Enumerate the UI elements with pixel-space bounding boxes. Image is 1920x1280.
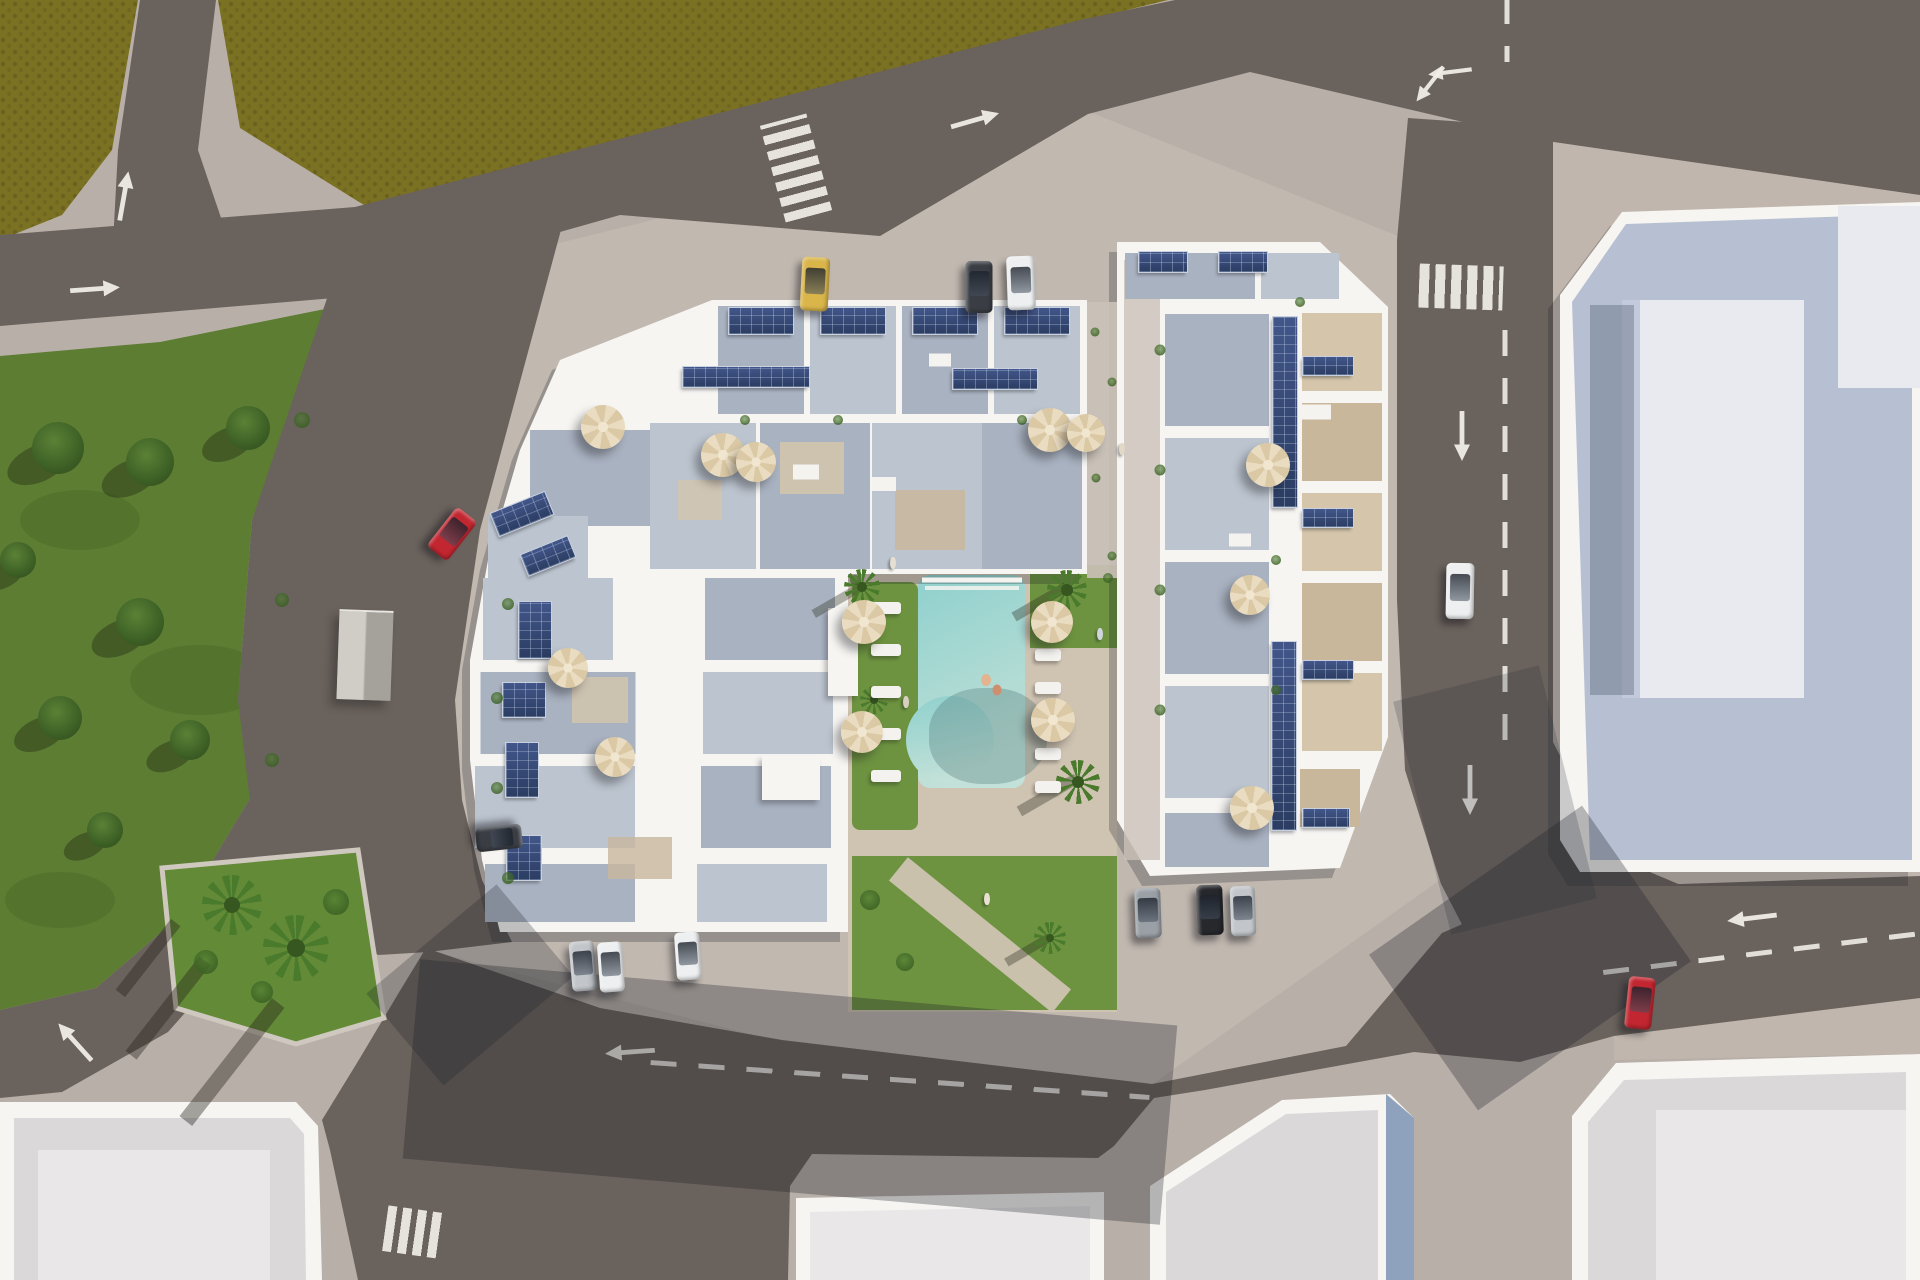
palm-shadow	[116, 919, 181, 997]
items-layer	[0, 0, 1920, 1280]
aerial-site-plan	[0, 0, 1920, 1280]
road-arrow	[70, 279, 121, 298]
terrace-gravel	[1302, 493, 1382, 571]
solar-panel	[1303, 357, 1353, 375]
pool-shade	[929, 688, 1047, 784]
parasol	[841, 711, 883, 753]
island-shrub	[323, 889, 349, 915]
shrub	[294, 412, 310, 428]
patio-table	[929, 354, 951, 367]
sun-lounger	[1035, 649, 1061, 661]
road-arrow	[112, 170, 136, 222]
parasol	[1246, 443, 1290, 487]
planter	[1155, 705, 1166, 716]
solar-panel	[1139, 252, 1187, 272]
terrace-gravel	[572, 677, 628, 723]
parasol	[736, 442, 776, 482]
terrace-gravel	[1302, 673, 1382, 751]
planter	[1092, 474, 1101, 483]
shrub	[265, 753, 279, 767]
planter	[1091, 328, 1100, 337]
parasol	[1067, 414, 1105, 452]
terrace-unit	[705, 578, 835, 660]
solar-panel	[503, 683, 545, 717]
silver-car	[1230, 886, 1257, 937]
patio-table	[1229, 534, 1251, 547]
terrace-unit	[1261, 253, 1339, 299]
island-palm	[202, 875, 262, 935]
road-arrow	[949, 105, 1001, 134]
island-shrub	[251, 981, 273, 1003]
pedestrian	[1119, 443, 1125, 455]
planter	[502, 872, 514, 884]
patio-table	[872, 477, 896, 491]
planter	[1017, 415, 1027, 425]
red-car	[426, 506, 477, 561]
park-tree	[87, 812, 123, 848]
parasol	[595, 737, 635, 777]
sun-lounger	[871, 644, 901, 656]
black-car	[1196, 885, 1224, 936]
terrace-unit	[703, 672, 833, 754]
park-tree	[32, 422, 84, 474]
white-car	[1446, 563, 1475, 619]
patio-table	[793, 465, 819, 480]
solar-panel	[683, 367, 809, 387]
crosswalk	[760, 113, 832, 222]
parasol	[842, 600, 886, 644]
parasol	[1028, 408, 1072, 452]
solar-panel	[953, 369, 1037, 389]
lane-dashes	[1505, 0, 1510, 62]
courtyard-palm	[1056, 760, 1100, 804]
white-car	[674, 931, 702, 981]
planter	[1103, 573, 1113, 583]
terrace-gravel	[678, 480, 722, 520]
park-tree	[226, 406, 270, 450]
pedestrian	[890, 557, 896, 569]
solar-panel	[1219, 252, 1267, 272]
sun-lounger	[871, 686, 901, 698]
sun-lounger	[871, 770, 901, 782]
terrace-gravel	[608, 837, 672, 879]
terrace-gravel	[1302, 313, 1382, 391]
solar-panel	[1303, 509, 1353, 527]
planter	[491, 782, 503, 794]
planter	[1295, 297, 1305, 307]
swimmer	[981, 674, 991, 686]
solar-panel	[1303, 661, 1353, 679]
shrub	[896, 953, 914, 971]
terrace-unit	[697, 864, 827, 922]
terrace-gravel	[895, 490, 965, 550]
planter	[1155, 465, 1166, 476]
patio-table	[1293, 405, 1331, 420]
entrance-canopy	[336, 609, 393, 701]
solar-panel	[1303, 809, 1349, 827]
terrace-gravel	[1302, 583, 1382, 661]
solar-panel	[506, 743, 538, 797]
solar-panel	[1272, 642, 1296, 830]
swimmer	[993, 685, 1002, 696]
terrace-unit	[982, 423, 1082, 569]
solar-panel	[821, 308, 885, 334]
terrace-unit	[1165, 314, 1269, 426]
silver-car	[568, 940, 597, 992]
building-shadow	[1369, 806, 1691, 1111]
palm-shadow	[180, 998, 285, 1126]
sun-lounger	[1035, 781, 1061, 793]
dark-car	[966, 261, 993, 313]
pedestrian	[903, 696, 909, 708]
courtyard-palm	[1034, 922, 1066, 954]
road-arrow-split	[1411, 62, 1449, 105]
shrub	[275, 593, 289, 607]
planter	[502, 598, 514, 610]
pedestrian	[984, 893, 990, 905]
terrace-unit	[1165, 686, 1269, 798]
white-car	[597, 941, 625, 993]
road-arrow	[1454, 411, 1470, 461]
pool-steps	[922, 578, 1022, 583]
planter	[1271, 555, 1281, 565]
parasol	[1230, 575, 1270, 615]
planter	[833, 415, 843, 425]
solar-panel	[1005, 308, 1069, 334]
pool-steps	[925, 586, 1019, 590]
yellow-car	[800, 256, 831, 311]
island-palm	[263, 915, 329, 981]
planter	[740, 415, 750, 425]
island-shrub	[194, 950, 218, 974]
solar-panel	[519, 602, 551, 658]
tower-shadow	[1590, 305, 1634, 695]
crosswalk	[382, 1205, 444, 1258]
pedestrian	[1097, 628, 1103, 640]
dark-car	[475, 824, 523, 853]
parasol	[1230, 786, 1274, 830]
park-tree	[170, 720, 210, 760]
planter	[1271, 685, 1281, 695]
parasol	[548, 648, 588, 688]
planter	[491, 692, 503, 704]
park-tree	[38, 696, 82, 740]
road-arrow	[52, 1018, 97, 1066]
crosswalk	[1418, 264, 1503, 311]
planter	[1108, 552, 1117, 561]
planter	[1155, 345, 1166, 356]
parasol	[1031, 601, 1073, 643]
park-tree	[126, 438, 174, 486]
stair-bulkhead	[762, 756, 820, 800]
parasol	[581, 405, 625, 449]
road-arrow	[1726, 907, 1778, 929]
park-tree	[0, 542, 36, 578]
sun-lounger	[1035, 748, 1061, 760]
park-tree	[116, 598, 164, 646]
planter	[1155, 585, 1166, 596]
white-car	[1006, 256, 1036, 311]
sun-lounger	[1035, 682, 1061, 694]
shrub	[860, 890, 880, 910]
solar-panel	[729, 308, 793, 334]
red-car	[1624, 976, 1656, 1031]
parasol	[1031, 698, 1075, 742]
gray-car	[1134, 888, 1162, 939]
planter	[1108, 378, 1117, 387]
